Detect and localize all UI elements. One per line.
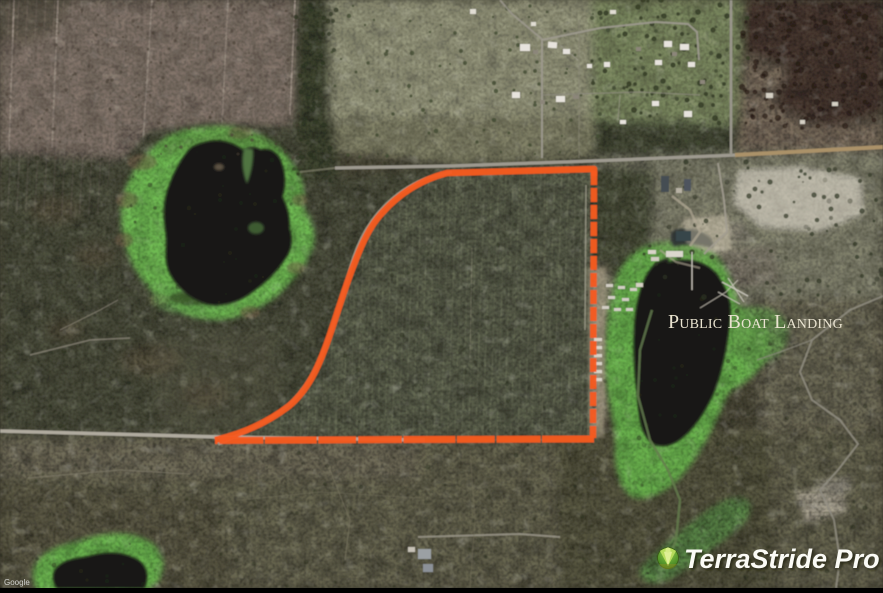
svg-text:Google: Google bbox=[4, 578, 30, 587]
svg-text:Public Boat Landing: Public Boat Landing bbox=[668, 311, 843, 333]
svg-text:TerraStride Pro: TerraStride Pro bbox=[684, 544, 880, 574]
